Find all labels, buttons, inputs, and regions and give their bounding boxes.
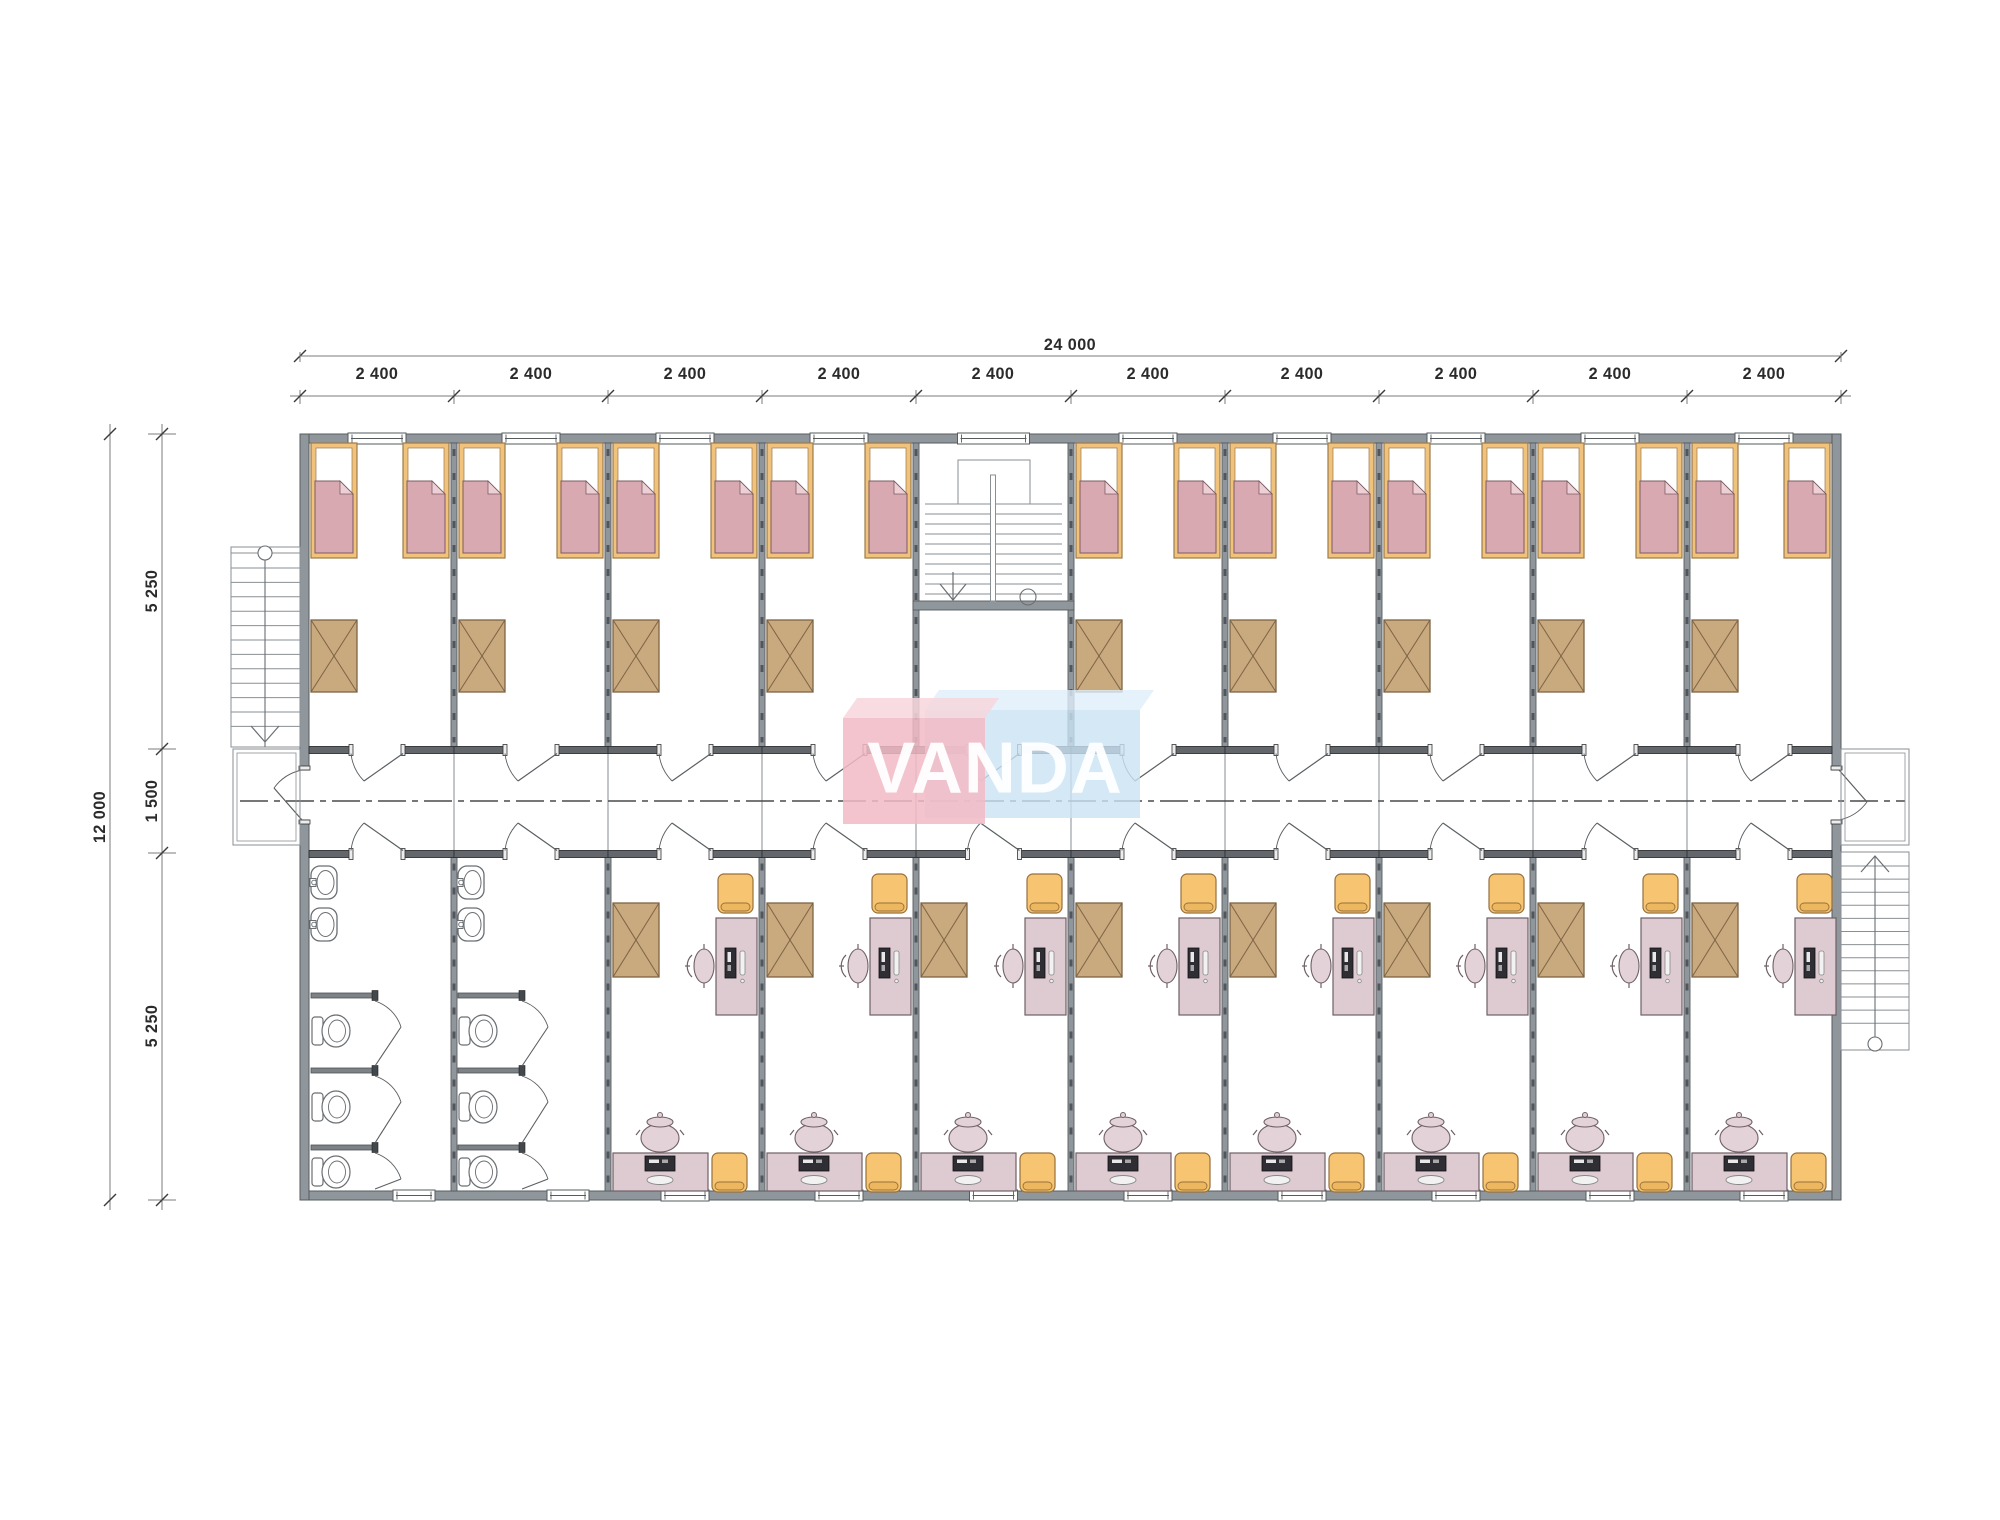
keyboard — [1203, 951, 1208, 975]
staircase-left — [231, 546, 300, 845]
window — [348, 433, 406, 444]
computer-monitor — [645, 1156, 675, 1171]
wardrobe-cabinet — [1230, 620, 1276, 692]
stool — [1643, 874, 1678, 913]
bed — [403, 443, 449, 558]
window — [1119, 433, 1177, 444]
door-swing-bottom — [659, 823, 711, 851]
office-bay-10 — [1692, 874, 1836, 1192]
stool — [718, 874, 753, 913]
tray — [801, 1176, 827, 1185]
bedroom-bay-4 — [767, 443, 911, 692]
door-swing-bottom — [505, 823, 557, 851]
door-swing-top — [1430, 754, 1482, 782]
office-chair — [944, 1113, 992, 1153]
window — [547, 1190, 589, 1201]
door-swing-bottom — [1584, 823, 1636, 851]
dim-row-bottom: 5 250 — [142, 1005, 162, 1048]
keyboard — [1665, 951, 1670, 975]
door-swing-top — [505, 754, 557, 782]
bedroom-bay-2 — [459, 443, 603, 692]
tray — [1572, 1176, 1598, 1185]
tray — [1726, 1176, 1752, 1185]
wardrobe-cabinet — [1692, 903, 1738, 977]
bed — [1174, 443, 1220, 558]
stool — [1489, 874, 1524, 913]
window — [970, 1190, 1018, 1201]
stool — [1181, 874, 1216, 913]
mouse — [1512, 979, 1516, 983]
stall-door — [522, 1153, 548, 1189]
wardrobe-cabinet — [1538, 620, 1584, 692]
stool — [1329, 1153, 1364, 1192]
door-swing-bottom — [1276, 823, 1328, 851]
window — [810, 433, 868, 444]
window — [502, 433, 560, 444]
office-chair — [839, 944, 868, 988]
bedroom-bay-1 — [311, 443, 449, 692]
window — [661, 1190, 709, 1201]
window — [815, 1190, 863, 1201]
wardrobe-cabinet — [1076, 903, 1122, 977]
bed — [459, 443, 505, 558]
office-bay-5 — [921, 874, 1066, 1192]
office-bay-9 — [1538, 874, 1682, 1192]
office-chair — [1715, 1113, 1763, 1153]
office-bay-6 — [1076, 874, 1220, 1192]
window — [1586, 1190, 1634, 1201]
mouse — [1666, 979, 1670, 983]
computer-monitor — [879, 948, 890, 978]
sink — [310, 908, 337, 941]
office-chair — [1099, 1113, 1147, 1153]
bathroom-bay-2 — [457, 866, 548, 1189]
tray — [955, 1176, 981, 1185]
office-bay-4 — [767, 874, 911, 1192]
bed — [1538, 443, 1584, 558]
window — [656, 433, 714, 444]
desk — [1487, 918, 1528, 1015]
computer-monitor — [953, 1156, 983, 1171]
stool — [866, 1153, 901, 1192]
door-swing-top — [659, 754, 711, 782]
stool — [1791, 1153, 1826, 1192]
toilet — [459, 1156, 497, 1188]
bed — [1230, 443, 1276, 558]
door-swing-bottom — [1122, 823, 1174, 851]
window — [1740, 1190, 1788, 1201]
stool — [1175, 1153, 1210, 1192]
tray — [1418, 1176, 1444, 1185]
office-chair — [1148, 944, 1177, 988]
tray — [647, 1176, 673, 1185]
sink — [457, 866, 484, 899]
bed — [1328, 443, 1374, 558]
bedroom-bay-3 — [613, 443, 757, 692]
office-bay-8 — [1384, 874, 1528, 1192]
office-chair — [790, 1113, 838, 1153]
tray — [1110, 1176, 1136, 1185]
office-chair — [1764, 944, 1793, 988]
desk — [1333, 918, 1374, 1015]
wardrobe-cabinet — [613, 903, 659, 977]
stool — [1027, 874, 1062, 913]
bedroom-bay-7 — [1230, 443, 1374, 692]
mouse — [1820, 979, 1824, 983]
office-bay-3 — [613, 874, 757, 1192]
stool — [1797, 874, 1832, 913]
mouse — [741, 979, 745, 983]
wardrobe-cabinet — [767, 903, 813, 977]
computer-monitor — [799, 1156, 829, 1171]
wardrobe-cabinet — [311, 620, 357, 692]
stool — [1020, 1153, 1055, 1192]
desk — [1179, 918, 1220, 1015]
keyboard — [1049, 951, 1054, 975]
desk — [1795, 918, 1836, 1015]
dim-overall-height: 12 000 — [90, 791, 110, 843]
desk — [716, 918, 757, 1015]
office-chair — [636, 1113, 684, 1153]
door-swing-bottom — [1430, 823, 1482, 851]
dim-row-top: 5 250 — [142, 570, 162, 613]
office-bay-7 — [1230, 874, 1374, 1192]
bed — [311, 443, 357, 558]
bedroom-bay-6 — [1076, 443, 1220, 692]
keyboard — [1511, 951, 1516, 975]
stall-door — [375, 1076, 401, 1143]
dim-bay-2: 2 400 — [510, 364, 553, 384]
office-chair — [1561, 1113, 1609, 1153]
window — [1432, 1190, 1480, 1201]
dim-bay-10: 2 400 — [1743, 364, 1786, 384]
toilet — [459, 1091, 497, 1123]
computer-monitor — [1650, 948, 1661, 978]
wardrobe-cabinet — [767, 620, 813, 692]
bed — [1784, 443, 1830, 558]
computer-monitor — [1724, 1156, 1754, 1171]
vanda-logo-text: VANDA — [867, 728, 1123, 810]
computer-monitor — [1188, 948, 1199, 978]
dim-bay-4: 2 400 — [818, 364, 861, 384]
mouse — [1204, 979, 1208, 983]
computer-monitor — [1034, 948, 1045, 978]
computer-monitor — [1262, 1156, 1292, 1171]
sink — [457, 908, 484, 941]
window — [393, 1190, 435, 1201]
door-swing-bottom — [813, 823, 865, 851]
wardrobe-cabinet — [1076, 620, 1122, 692]
office-chair — [1253, 1113, 1301, 1153]
window — [1278, 1190, 1326, 1201]
stool — [1637, 1153, 1672, 1192]
bed — [613, 443, 659, 558]
window — [1581, 433, 1639, 444]
dim-overall-width: 24 000 — [1044, 335, 1096, 355]
stall-door — [522, 1001, 548, 1066]
staircase-right — [1841, 749, 1909, 1051]
stall-door — [375, 1153, 401, 1189]
bedroom-bay-10 — [1692, 443, 1830, 692]
wardrobe-cabinet — [1692, 620, 1738, 692]
dim-bay-1: 2 400 — [356, 364, 399, 384]
door-swing-top — [1276, 754, 1328, 782]
bed — [1384, 443, 1430, 558]
wardrobe-cabinet — [921, 903, 967, 977]
bed — [711, 443, 757, 558]
bed — [865, 443, 911, 558]
keyboard — [740, 951, 745, 975]
door-swing-bottom — [351, 823, 403, 851]
toilet — [312, 1091, 350, 1123]
mouse — [1050, 979, 1054, 983]
computer-monitor — [1108, 1156, 1138, 1171]
keyboard — [1819, 951, 1824, 975]
keyboard — [894, 951, 899, 975]
door-swing-top — [351, 754, 403, 782]
wardrobe-cabinet — [1384, 903, 1430, 977]
window — [1735, 433, 1793, 444]
window — [1273, 433, 1331, 444]
wardrobe-cabinet — [1384, 620, 1430, 692]
toilet — [312, 1015, 350, 1047]
office-chair — [1407, 1113, 1455, 1153]
bathroom-bay-1 — [310, 866, 401, 1189]
door-swing-top — [1738, 754, 1790, 782]
bed — [1636, 443, 1682, 558]
computer-monitor — [1570, 1156, 1600, 1171]
staircase-center — [913, 460, 1074, 610]
dim-bay-9: 2 400 — [1589, 364, 1632, 384]
sink — [310, 866, 337, 899]
window — [958, 433, 1030, 444]
wardrobe-cabinet — [613, 620, 659, 692]
computer-monitor — [725, 948, 736, 978]
dim-bay-5: 2 400 — [972, 364, 1015, 384]
dim-bay-6: 2 400 — [1127, 364, 1170, 384]
stool — [872, 874, 907, 913]
bedroom-bay-9 — [1538, 443, 1682, 692]
tray — [1264, 1176, 1290, 1185]
stool — [1483, 1153, 1518, 1192]
bed — [1692, 443, 1738, 558]
office-chair — [994, 944, 1023, 988]
office-chair — [1302, 944, 1331, 988]
window — [1427, 433, 1485, 444]
toilet — [312, 1156, 350, 1188]
computer-monitor — [1804, 948, 1815, 978]
dim-bay-3: 2 400 — [664, 364, 707, 384]
stall-door — [375, 1001, 401, 1066]
bed — [1076, 443, 1122, 558]
computer-monitor — [1342, 948, 1353, 978]
wardrobe-cabinet — [1538, 903, 1584, 977]
bed — [557, 443, 603, 558]
floor-plan-page: 24 000 2 400 2 400 2 400 2 400 2 400 2 4… — [0, 0, 2000, 1520]
bed — [1482, 443, 1528, 558]
dim-bay-8: 2 400 — [1435, 364, 1478, 384]
window — [1124, 1190, 1172, 1201]
bedroom-bay-8 — [1384, 443, 1528, 692]
mouse — [895, 979, 899, 983]
door-swing-bottom — [1738, 823, 1790, 851]
door-swing-top — [1584, 754, 1636, 782]
bed — [767, 443, 813, 558]
mouse — [1358, 979, 1362, 983]
desk — [870, 918, 911, 1015]
toilet — [459, 1015, 497, 1047]
office-chair — [1610, 944, 1639, 988]
computer-monitor — [1496, 948, 1507, 978]
desk — [1025, 918, 1066, 1015]
computer-monitor — [1416, 1156, 1446, 1171]
stool — [1335, 874, 1370, 913]
dim-row-middle: 1 500 — [142, 780, 162, 823]
stall-door — [522, 1076, 548, 1143]
door-swing-bottom — [968, 823, 1020, 851]
wardrobe-cabinet — [459, 620, 505, 692]
keyboard — [1357, 951, 1362, 975]
stool — [712, 1153, 747, 1192]
wardrobe-cabinet — [1230, 903, 1276, 977]
office-chair — [1456, 944, 1485, 988]
desk — [1641, 918, 1682, 1015]
office-chair — [685, 944, 714, 988]
dim-bay-7: 2 400 — [1281, 364, 1324, 384]
